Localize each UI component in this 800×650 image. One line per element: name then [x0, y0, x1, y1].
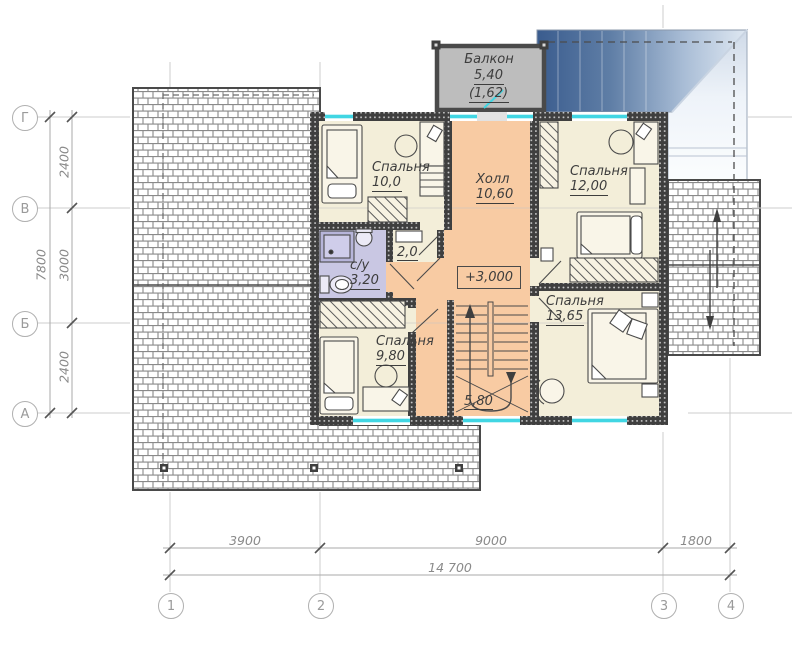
axis-col-3: 3 — [651, 593, 677, 619]
balcony-area: 5,40 — [474, 68, 504, 85]
dim-3900: 3900 — [229, 533, 261, 548]
dim-2400-bottom: 2400 — [57, 351, 72, 383]
bedroom-top-right-label: Спальня 12,00 — [570, 164, 628, 196]
elevation-mark: +3,000 — [457, 266, 521, 289]
dim-7800-total: 7800 — [34, 249, 49, 281]
axis-col-1: 1 — [158, 593, 184, 619]
hall-label: Холл 10,60 — [476, 172, 514, 204]
furniture-closet — [396, 231, 422, 242]
room-name: Спальня — [570, 164, 628, 179]
dim-2400-top: 2400 — [57, 146, 72, 178]
room-name: Спальня — [372, 160, 430, 175]
closet-area-label: 2,0 — [397, 245, 418, 261]
room-area: 9,80 — [376, 349, 406, 366]
dim-9000: 9000 — [475, 533, 507, 548]
axis-row-g: Г — [12, 105, 38, 131]
room-name: Спальня — [546, 294, 604, 309]
room-area: 10,0 — [372, 175, 402, 192]
stairs-area-label: 5,80 — [464, 394, 493, 410]
room-area: 10,60 — [476, 187, 514, 204]
dim-3000: 3000 — [57, 249, 72, 281]
room-name: Спальня — [376, 334, 434, 349]
balcony-name: Балкон — [464, 52, 514, 67]
balcony-door-opening — [477, 112, 507, 121]
dim-1800: 1800 — [680, 533, 712, 548]
floor-plan-canvas: Балкон 5,40 (1,62) Спальня 10,0 Холл 10,… — [0, 0, 800, 650]
room-name: Холл — [476, 172, 514, 187]
balcony-area-sub: (1,62) — [469, 86, 509, 103]
bedroom-bottom-left-label: Спальня 9,80 — [376, 334, 434, 366]
dim-14700-total: 14 700 — [428, 560, 472, 575]
room-area: 3,20 — [350, 273, 380, 290]
room-name: с/у — [350, 258, 380, 273]
right-roof-hatch — [668, 180, 760, 355]
room-area: 12,00 — [570, 179, 608, 196]
axis-col-4: 4 — [718, 593, 744, 619]
axis-row-a: А — [12, 401, 38, 427]
bathroom-label: с/у 3,20 — [350, 258, 380, 290]
room-area: 13,65 — [546, 309, 584, 326]
balcony-label: Балкон 5,40 (1,62) — [452, 52, 526, 103]
axis-row-v: В — [12, 196, 38, 222]
bedroom-bottom-right-label: Спальня 13,65 — [546, 294, 604, 326]
axis-col-2: 2 — [308, 593, 334, 619]
axis-row-b: Б — [12, 311, 38, 337]
floor-plan-drawing — [0, 0, 800, 650]
bedroom-top-left-label: Спальня 10,0 — [372, 160, 430, 192]
